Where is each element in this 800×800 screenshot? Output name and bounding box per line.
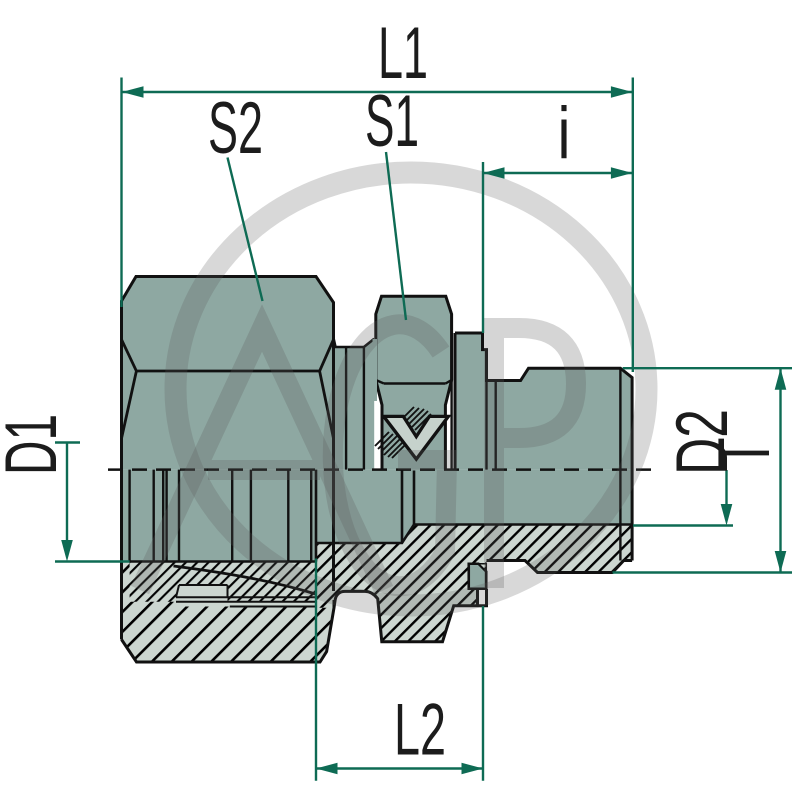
- svg-text:D1: D1: [0, 414, 72, 475]
- svg-text:S2: S2: [208, 88, 263, 169]
- svg-text:T: T: [704, 438, 785, 469]
- svg-text:i: i: [558, 93, 571, 174]
- svg-text:L2: L2: [394, 690, 446, 771]
- svg-text:S1: S1: [365, 81, 419, 162]
